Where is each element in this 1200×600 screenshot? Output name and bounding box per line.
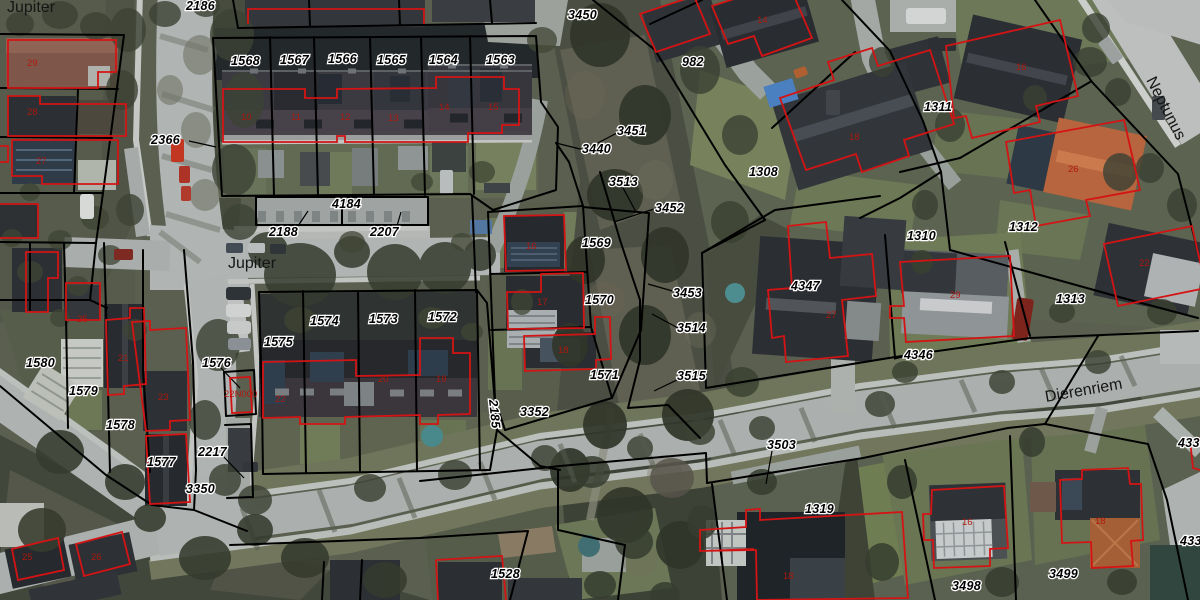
svg-text:1575: 1575 (264, 335, 294, 349)
svg-text:2207: 2207 (369, 225, 400, 239)
svg-text:1574: 1574 (310, 314, 339, 328)
svg-text:16: 16 (526, 241, 537, 252)
svg-text:2217: 2217 (197, 445, 228, 459)
svg-text:1570: 1570 (585, 293, 614, 307)
svg-text:3453: 3453 (673, 286, 702, 300)
svg-text:1565: 1565 (377, 53, 407, 67)
svg-text:1311: 1311 (924, 100, 952, 114)
svg-text:25: 25 (77, 314, 88, 325)
svg-text:23: 23 (158, 392, 169, 403)
svg-text:22: 22 (275, 394, 286, 405)
svg-text:25: 25 (22, 552, 33, 563)
svg-text:1313: 1313 (1056, 292, 1085, 306)
svg-text:2366: 2366 (150, 133, 181, 147)
svg-text:14: 14 (757, 15, 768, 26)
svg-text:1563: 1563 (486, 53, 515, 67)
svg-text:12: 12 (340, 112, 351, 123)
svg-text:3498: 3498 (952, 579, 981, 593)
svg-text:19: 19 (436, 374, 447, 385)
svg-text:4347: 4347 (790, 279, 821, 293)
svg-text:1310: 1310 (907, 229, 936, 243)
svg-text:16: 16 (962, 517, 973, 528)
svg-text:1571: 1571 (590, 368, 619, 382)
svg-text:1564: 1564 (429, 53, 458, 67)
svg-text:21: 21 (118, 353, 129, 364)
svg-text:1567: 1567 (280, 53, 310, 67)
svg-text:16: 16 (1016, 62, 1027, 73)
svg-text:4334: 4334 (1179, 534, 1200, 548)
svg-text:22: 22 (1139, 258, 1150, 269)
svg-text:1568: 1568 (231, 54, 260, 68)
svg-text:4184: 4184 (331, 197, 361, 211)
svg-text:14: 14 (439, 102, 450, 113)
svg-text:18: 18 (1095, 516, 1106, 527)
svg-text:15: 15 (488, 102, 499, 113)
svg-text:1576: 1576 (202, 356, 232, 370)
svg-text:1566: 1566 (328, 52, 358, 66)
svg-text:3451: 3451 (617, 124, 646, 138)
svg-text:1572: 1572 (428, 310, 457, 324)
svg-text:3513: 3513 (609, 175, 638, 189)
svg-text:26: 26 (91, 552, 102, 563)
svg-text:29: 29 (950, 290, 961, 301)
svg-text:3514: 3514 (677, 321, 706, 335)
svg-text:1578: 1578 (106, 418, 135, 432)
svg-text:3450: 3450 (568, 8, 597, 22)
svg-text:1312: 1312 (1009, 220, 1038, 234)
svg-text:3452: 3452 (655, 201, 684, 215)
svg-text:4333: 4333 (1177, 436, 1200, 450)
svg-text:13: 13 (388, 113, 399, 124)
svg-text:1569: 1569 (582, 236, 611, 250)
svg-text:3499: 3499 (1049, 567, 1078, 581)
svg-text:27: 27 (826, 310, 837, 321)
svg-text:27: 27 (36, 156, 47, 167)
svg-text:22N000: 22N000 (224, 389, 257, 400)
svg-text:11: 11 (291, 112, 301, 123)
svg-text:1308: 1308 (749, 165, 778, 179)
svg-text:982: 982 (682, 55, 704, 69)
svg-text:10: 10 (241, 112, 252, 123)
svg-text:28: 28 (27, 107, 38, 118)
svg-text:3503: 3503 (767, 438, 796, 452)
svg-text:1573: 1573 (369, 312, 398, 326)
svg-text:1319: 1319 (805, 502, 834, 516)
svg-text:1528: 1528 (491, 567, 520, 581)
svg-text:29: 29 (27, 58, 38, 69)
svg-text:18: 18 (783, 571, 794, 582)
svg-text:20: 20 (378, 374, 389, 385)
svg-text:Jupiter: Jupiter (228, 255, 277, 272)
svg-text:3515: 3515 (677, 369, 707, 383)
svg-text:1579: 1579 (69, 384, 98, 398)
svg-text:Jupiter: Jupiter (7, 0, 56, 16)
svg-text:18: 18 (849, 132, 860, 143)
svg-text:1577: 1577 (147, 455, 177, 469)
svg-text:26: 26 (1068, 164, 1079, 175)
svg-text:2188: 2188 (268, 225, 298, 239)
svg-text:3440: 3440 (582, 142, 611, 156)
svg-text:3352: 3352 (520, 405, 549, 419)
svg-text:1580: 1580 (26, 356, 55, 370)
svg-text:18: 18 (558, 345, 569, 356)
svg-text:2186: 2186 (185, 0, 216, 13)
svg-text:17: 17 (537, 297, 548, 308)
svg-text:4346: 4346 (903, 348, 934, 362)
svg-text:3350: 3350 (186, 482, 215, 496)
